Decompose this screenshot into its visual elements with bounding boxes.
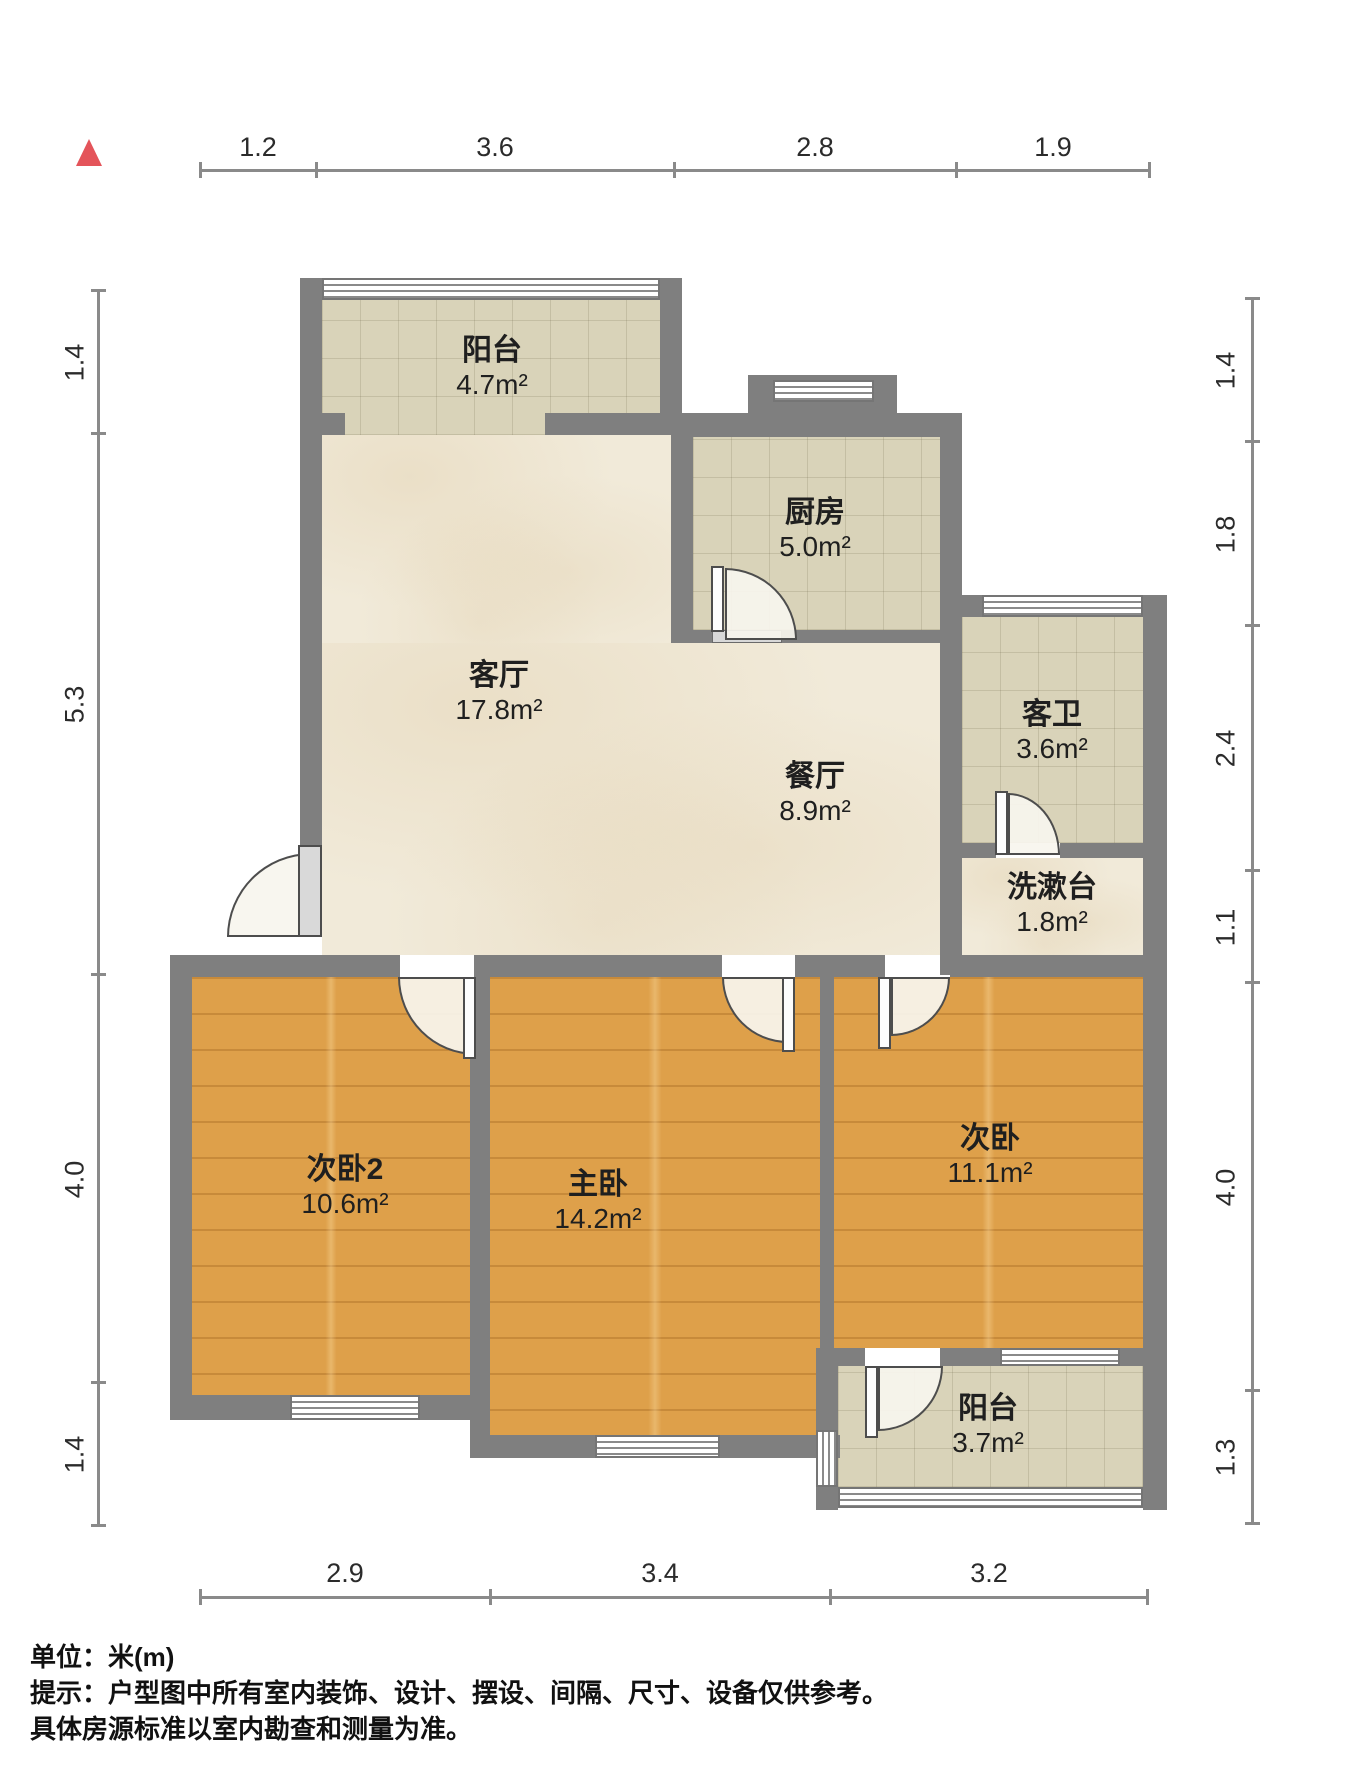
- room-label-bedroom: 次卧 11.1m²: [890, 1122, 1090, 1190]
- wall: [816, 1348, 838, 1430]
- room-label-master: 主卧 14.2m²: [498, 1168, 698, 1236]
- dim-line-right: [1251, 298, 1254, 1523]
- room-label-living: 客厅 17.8m²: [399, 659, 599, 727]
- wall: [820, 977, 834, 1348]
- floor-living-upper: [322, 435, 671, 643]
- wall: [795, 955, 885, 977]
- dim-tick: [829, 1589, 832, 1605]
- wall: [474, 955, 722, 977]
- dim-label-right: 1.4: [1211, 329, 1242, 413]
- wall: [300, 435, 322, 847]
- window-master-bedroom: [595, 1435, 720, 1458]
- dim-line-left: [97, 290, 100, 1525]
- room-name: 厨房: [715, 496, 915, 530]
- wall: [660, 278, 682, 415]
- wall: [816, 1487, 838, 1510]
- dim-tick: [91, 289, 106, 292]
- dim-tick: [91, 432, 106, 435]
- window-kitchen: [773, 380, 874, 402]
- room-area: 10.6m²: [245, 1187, 445, 1221]
- dim-label-left: 1.4: [60, 1413, 91, 1497]
- dim-tick: [673, 162, 676, 178]
- room-area: 3.7m²: [888, 1426, 1088, 1460]
- dim-tick: [1245, 297, 1260, 300]
- floorplan-canvas: 阳台 4.7m² 厨房 5.0m² 客厅 17.8m² 餐厅 8.9m² 客卫 …: [0, 0, 1355, 1788]
- wall: [170, 955, 400, 977]
- wall: [940, 437, 962, 643]
- dim-line-bottom: [200, 1596, 1148, 1599]
- room-area: 4.7m²: [392, 368, 592, 402]
- dim-label-right: 1.8: [1211, 493, 1242, 577]
- dim-tick: [91, 1524, 106, 1527]
- dim-tick: [1146, 1589, 1149, 1605]
- wall: [782, 630, 962, 643]
- dim-tick: [1245, 440, 1260, 443]
- dim-label-bottom: 3.4: [618, 1558, 702, 1589]
- dim-label-right: 2.4: [1211, 707, 1242, 791]
- door-leaf-entry: [298, 845, 322, 937]
- dim-label-left: 5.3: [60, 663, 91, 747]
- dim-tick: [955, 162, 958, 178]
- dim-tick: [91, 973, 106, 976]
- dim-label-top: 2.8: [773, 132, 857, 163]
- wall: [671, 630, 712, 643]
- dim-label-top: 1.2: [216, 132, 300, 163]
- room-name: 阳台: [392, 334, 592, 368]
- dim-label-top: 3.6: [453, 132, 537, 163]
- footer-hint-line2: 具体房源标准以室内勘查和测量为准。: [30, 1712, 472, 1746]
- dim-tick: [91, 1381, 106, 1384]
- room-name: 次卧2: [245, 1153, 445, 1187]
- wall: [940, 1348, 1000, 1366]
- dim-label-right: 1.1: [1211, 886, 1242, 970]
- room-label-balcony-top: 阳台 4.7m²: [392, 334, 592, 402]
- room-name: 客卫: [952, 698, 1152, 732]
- room-label-bedroom2: 次卧2 10.6m²: [245, 1153, 445, 1221]
- room-label-bathroom: 客卫 3.6m²: [952, 698, 1152, 766]
- footer-unit-note: 单位：米(m): [30, 1640, 174, 1674]
- window-balcony-side: [816, 1430, 838, 1487]
- footer-hint-line1: 提示：户型图中所有室内装饰、设计、摆设、间隔、尺寸、设备仅供参考。: [30, 1676, 888, 1710]
- window-balcony-bottom: [838, 1487, 1143, 1508]
- window-bedroom2: [290, 1395, 420, 1420]
- room-area: 11.1m²: [890, 1156, 1090, 1190]
- dim-tick: [199, 162, 202, 178]
- dim-label-bottom: 3.2: [947, 1558, 1031, 1589]
- wall: [962, 595, 982, 617]
- room-name: 次卧: [890, 1122, 1090, 1156]
- door-leaf-bedroom2: [463, 977, 476, 1059]
- room-area: 8.9m²: [715, 794, 915, 828]
- wall: [950, 955, 1167, 977]
- room-name: 餐厅: [715, 760, 915, 794]
- dim-label-right: 4.0: [1211, 1146, 1242, 1230]
- dim-tick: [1148, 162, 1151, 178]
- window-bedroom: [1000, 1348, 1120, 1366]
- room-label-kitchen: 厨房 5.0m²: [715, 496, 915, 564]
- room-name: 洗漱台: [952, 871, 1152, 905]
- wall: [940, 843, 996, 858]
- dim-tick: [199, 1589, 202, 1605]
- wall: [1060, 843, 1143, 858]
- dim-tick: [1245, 624, 1260, 627]
- door-leaf-master: [782, 977, 795, 1052]
- door-leaf-balcony: [865, 1366, 878, 1438]
- wall-left-exterior: [170, 977, 192, 1420]
- dim-tick: [1245, 1522, 1260, 1525]
- room-name: 主卧: [498, 1168, 698, 1202]
- room-label-dining: 餐厅 8.9m²: [715, 760, 915, 828]
- wall: [671, 437, 693, 643]
- room-area: 17.8m²: [399, 693, 599, 727]
- dim-label-left: 4.0: [60, 1138, 91, 1222]
- dim-label-left: 1.4: [60, 321, 91, 405]
- room-area: 3.6m²: [952, 732, 1152, 766]
- dim-label-bottom: 2.9: [303, 1558, 387, 1589]
- dim-label-right: 1.3: [1211, 1416, 1242, 1500]
- wall: [300, 278, 322, 435]
- room-name: 客厅: [399, 659, 599, 693]
- dim-tick: [1245, 869, 1260, 872]
- dim-label-top: 1.9: [1011, 132, 1095, 163]
- window-balcony-top: [322, 278, 660, 300]
- wall: [300, 413, 345, 435]
- door-leaf-bathroom: [995, 791, 1008, 855]
- door-leaf-kitchen: [711, 566, 724, 632]
- dim-tick: [489, 1589, 492, 1605]
- wall: [1120, 1348, 1167, 1366]
- room-area: 5.0m²: [715, 530, 915, 564]
- room-area: 14.2m²: [498, 1202, 698, 1236]
- dim-tick: [1245, 981, 1260, 984]
- north-arrow-icon: [76, 139, 102, 166]
- door-leaf-bedroom: [878, 977, 891, 1049]
- wall: [671, 413, 962, 437]
- room-label-balcony-bottom: 阳台 3.7m²: [888, 1392, 1088, 1460]
- dim-tick: [1245, 1389, 1260, 1392]
- room-name: 阳台: [888, 1392, 1088, 1426]
- dim-tick: [315, 162, 318, 178]
- room-area: 1.8m²: [952, 905, 1152, 939]
- window-bathroom: [982, 595, 1143, 617]
- room-label-washstand: 洗漱台 1.8m²: [952, 871, 1152, 939]
